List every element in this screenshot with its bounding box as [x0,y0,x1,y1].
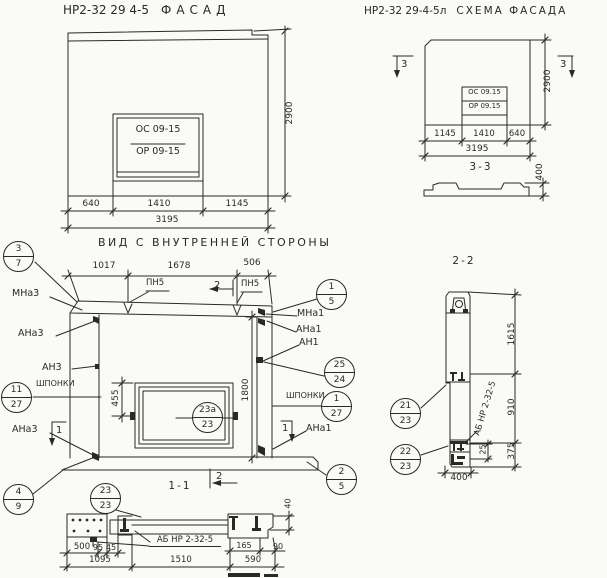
scheme-section-marker-left: 3 [401,59,407,70]
callout-bottom: 5 [327,480,356,494]
section-3-3-dim-400: 400 [535,154,545,190]
scheme-dim-1410: 1410 [467,130,501,139]
callout-bottom: 27 [2,398,31,412]
callout-bottom: 24 [325,373,354,387]
callout-top: 22 [391,445,420,460]
scheme-section-marker-right: 3 [560,59,566,70]
callout-top: 2 [327,465,356,480]
callout-bottom: 23 [91,499,120,513]
facade-dim-1145: 1145 [219,200,255,210]
callout-bottom: 5 [317,295,346,309]
callout-11-27: 11 27 [1,382,32,413]
scheme-window-mark-top: ОС 09.15 [463,89,506,97]
scheme-dim-2900: 2900 [543,63,553,99]
inner-label-pn5-right: ПН5 [241,280,259,289]
inner-dim-1800: 1800 [241,372,251,408]
sec11-dim-590: 590 [236,556,270,565]
section-3-3-title: 3-3 [459,162,503,174]
scheme-dim-640: 640 [504,130,530,139]
inner-dim-455: 455 [111,380,121,416]
callout-top: 21 [391,399,420,414]
inner-marker-2-top: 2 [214,280,220,291]
callout-21-23: 21 23 [390,398,421,429]
sec11-dim-95: 95 [92,544,104,553]
sec22-dim-400: 400 [445,474,473,484]
inner-marker-2-bottom: 2 [216,471,222,482]
inner-label-ana3-top: АНа3 [18,329,44,339]
inner-label-mna1: МНа1 [297,309,324,319]
sec22-dim-910: 910 [507,389,517,425]
scheme-title: НР2-32 29-4-5л СХЕМА ФАСАДА [364,6,567,18]
callout-bottom: 27 [322,407,351,421]
inner-label-mna3: МНа3 [12,289,39,299]
facade-dim-3195: 3195 [148,216,186,226]
callout-3-7: 3 7 [3,241,34,272]
facade-title: НР2-32 29 4-5 ФАСАД [63,4,231,17]
callout-4-9: 4 9 [3,484,34,515]
inner-view-title: ВИД С ВНУТРЕННЕЙ СТОРОНЫ [98,237,331,249]
inner-label-an1: АН1 [299,338,319,348]
callout-top: 4 [4,485,33,500]
callout-top: 1 [322,392,351,407]
callout-top: 25 [325,358,354,373]
callout-bottom: 7 [4,257,33,271]
sec22-dim-1615: 1615 [507,316,517,352]
callout-top: 11 [2,383,31,398]
facade-dim-2900: 2900 [285,95,295,131]
sec11-part-label: АБ НР 2-32-5 [149,536,221,547]
callout-bottom: 9 [4,500,33,514]
sec22-dim-25: 25 [479,432,488,468]
inner-marker-1-right: 1 [282,423,288,434]
inner-label-an3: АН3 [42,363,62,373]
inner-label-ana1-top: АНа1 [296,325,322,335]
facade-window-mark-top: ОС 09-15 [126,125,190,135]
callout-23-23: 23 23 [90,483,121,514]
callout-top: 1 [317,280,346,295]
sec11-dim-1095: 1095 [83,556,117,565]
callout-top: 23 [91,484,120,499]
scheme-title-word: СХЕМА ФАСАДА [456,6,567,18]
inner-dim-1678: 1678 [162,262,196,272]
scheme-title-code: НР2-32 29-4-5л [364,6,446,18]
callout-22-23: 22 23 [390,444,421,475]
inner-label-ana3-bottom: АНа3 [12,425,38,435]
inner-dim-1017: 1017 [88,262,120,272]
callout-25-24: 25 24 [324,357,355,388]
scheme-window-mark-bottom: ОР 09.15 [463,103,506,111]
inner-dim-506: 506 [238,259,266,269]
facade-dim-1410: 1410 [142,200,176,210]
sec11-dim-40: 40 [284,486,293,522]
callout-bottom: 23 [193,418,222,432]
facade-dim-640: 640 [77,200,105,210]
sec11-dim-45: 45 [105,544,117,553]
inner-label-shponki-right: ШПОНКИ [286,392,325,401]
callout-bottom: 23 [391,414,420,428]
facade-window-mark-bottom: ОР 09-15 [126,147,190,157]
inner-marker-1-left: 1 [56,425,62,436]
sec11-dim-90: 90 [268,543,288,552]
inner-label-pn5-left: ПН5 [146,279,164,288]
callout-1-27: 1 27 [321,391,352,422]
sec22-dim-375: 375 [507,433,517,469]
scheme-dim-3195: 3195 [459,145,495,155]
scheme-dim-1145: 1145 [429,130,461,139]
drawing-sheet: НР2-32 29 4-5 ФАСАД ОС 09-15 ОР 09-15 64… [0,0,607,578]
sec11-dim-165: 165 [232,542,256,551]
callout-top: 3 [4,242,33,257]
callout-2-5: 2 5 [326,464,357,495]
callout-bottom: 23 [391,460,420,474]
section-2-2-title: 2-2 [446,256,482,268]
sec11-dim-1510: 1510 [164,556,198,565]
callout-23a-23: 23а 23 [192,402,223,433]
facade-title-code: НР2-32 29 4-5 [63,4,149,17]
callout-1-5: 1 5 [316,279,347,310]
facade-title-word: ФАСАД [161,4,231,17]
callout-top: 23а [193,403,222,418]
section-1-1-title: 1-1 [160,481,200,493]
inner-label-shponki-left: ШПОНКИ [36,380,75,389]
inner-label-ana1-bottom: АНа1 [306,424,332,434]
